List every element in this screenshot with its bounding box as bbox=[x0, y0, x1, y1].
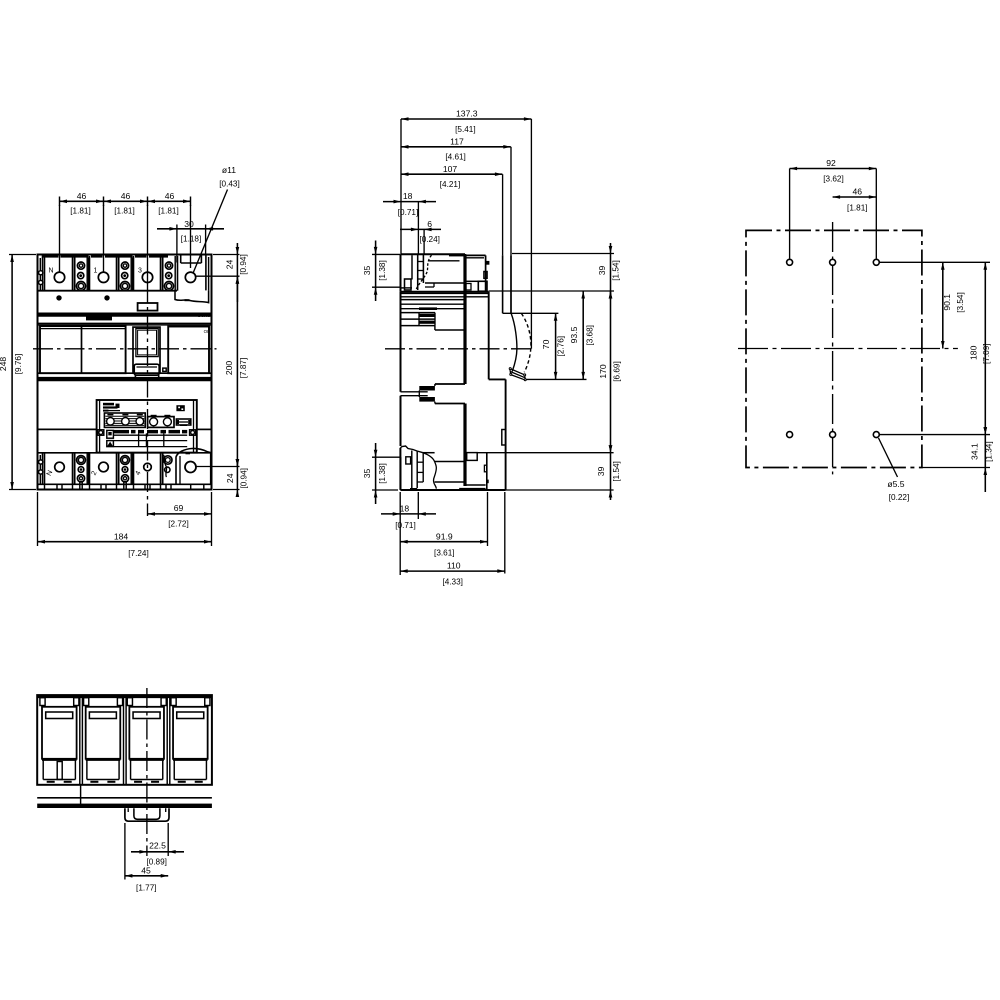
svg-text:[3.54]: [3.54] bbox=[956, 292, 965, 313]
svg-text:45: 45 bbox=[141, 865, 151, 875]
svg-text:[1.54]: [1.54] bbox=[612, 461, 621, 482]
svg-text:[4.21]: [4.21] bbox=[440, 180, 461, 189]
svg-text:[0.71]: [0.71] bbox=[398, 208, 419, 217]
svg-text:34.1: 34.1 bbox=[970, 443, 980, 460]
svg-text:39: 39 bbox=[596, 466, 606, 476]
svg-text:3: 3 bbox=[138, 268, 142, 275]
svg-text:6: 6 bbox=[427, 219, 432, 229]
svg-text:[1.38]: [1.38] bbox=[378, 463, 387, 484]
svg-text:[2.72]: [2.72] bbox=[168, 519, 189, 528]
svg-text:[4.33]: [4.33] bbox=[442, 578, 463, 587]
svg-text:184: 184 bbox=[114, 531, 129, 541]
svg-text:46: 46 bbox=[853, 187, 863, 197]
svg-text:3VA6: 3VA6 bbox=[198, 313, 211, 319]
svg-text:[6.69]: [6.69] bbox=[612, 361, 621, 382]
svg-text:107: 107 bbox=[443, 164, 458, 174]
svg-text:[2.76]: [2.76] bbox=[557, 336, 566, 357]
svg-text:[7.87]: [7.87] bbox=[239, 358, 248, 379]
svg-text:[9.76]: [9.76] bbox=[14, 354, 23, 375]
svg-text:200: 200 bbox=[224, 361, 234, 376]
svg-text:[1.38]: [1.38] bbox=[378, 260, 387, 281]
svg-text:ø11: ø11 bbox=[222, 165, 236, 175]
svg-text:46: 46 bbox=[165, 191, 175, 201]
svg-text:[1.81]: [1.81] bbox=[70, 206, 91, 215]
svg-text:[1.81]: [1.81] bbox=[847, 204, 868, 213]
svg-text:[0.94]: [0.94] bbox=[239, 468, 248, 489]
svg-text:35: 35 bbox=[362, 266, 372, 276]
svg-text:1: 1 bbox=[94, 268, 98, 275]
svg-text:[0.24]: [0.24] bbox=[419, 235, 440, 244]
svg-text:69: 69 bbox=[174, 503, 184, 513]
svg-text:46: 46 bbox=[77, 191, 87, 201]
svg-text:248: 248 bbox=[0, 357, 8, 372]
svg-text:30: 30 bbox=[184, 219, 194, 229]
svg-text:[1.81]: [1.81] bbox=[158, 206, 179, 215]
svg-text:92: 92 bbox=[826, 158, 836, 168]
svg-text:[0.71]: [0.71] bbox=[395, 521, 416, 530]
svg-text:39: 39 bbox=[597, 266, 607, 276]
svg-text:[7.09]: [7.09] bbox=[982, 343, 991, 364]
svg-text:[4.61]: [4.61] bbox=[445, 153, 466, 162]
svg-text:[0.22]: [0.22] bbox=[889, 493, 910, 502]
svg-text:[3.61]: [3.61] bbox=[434, 549, 455, 558]
svg-text:117: 117 bbox=[450, 136, 464, 146]
svg-text:70: 70 bbox=[541, 339, 551, 349]
svg-text:110: 110 bbox=[447, 561, 461, 571]
svg-text:N: N bbox=[48, 268, 53, 275]
svg-text:35: 35 bbox=[362, 469, 372, 479]
svg-text:180: 180 bbox=[969, 345, 979, 360]
svg-text:[0.43]: [0.43] bbox=[219, 180, 240, 189]
svg-text:22.5: 22.5 bbox=[149, 841, 166, 851]
svg-text:[0.94]: [0.94] bbox=[239, 254, 248, 274]
svg-text:ø5.5: ø5.5 bbox=[887, 479, 904, 489]
svg-text:[3.62]: [3.62] bbox=[823, 175, 844, 184]
svg-text:18: 18 bbox=[403, 191, 413, 201]
svg-text:[5.41]: [5.41] bbox=[455, 125, 476, 134]
svg-text:[1.18]: [1.18] bbox=[181, 235, 202, 244]
svg-text:OI: OI bbox=[204, 329, 209, 334]
svg-text:24: 24 bbox=[225, 473, 235, 483]
svg-text:[1.54]: [1.54] bbox=[611, 260, 620, 281]
svg-text:18: 18 bbox=[400, 503, 410, 513]
svg-text:[1.81]: [1.81] bbox=[114, 206, 135, 215]
svg-text:90.1: 90.1 bbox=[942, 294, 952, 311]
svg-text:93.5: 93.5 bbox=[569, 326, 579, 343]
svg-text:91.9: 91.9 bbox=[436, 531, 453, 541]
svg-text:[1.34]: [1.34] bbox=[985, 441, 994, 462]
svg-text:170: 170 bbox=[598, 364, 608, 379]
svg-text:[7.24]: [7.24] bbox=[128, 549, 149, 558]
svg-text:[3.68]: [3.68] bbox=[585, 325, 594, 346]
svg-text:137.3: 137.3 bbox=[456, 109, 478, 119]
svg-text:24: 24 bbox=[225, 260, 235, 270]
svg-text:46: 46 bbox=[121, 191, 131, 201]
svg-text:[1.77]: [1.77] bbox=[136, 884, 157, 893]
